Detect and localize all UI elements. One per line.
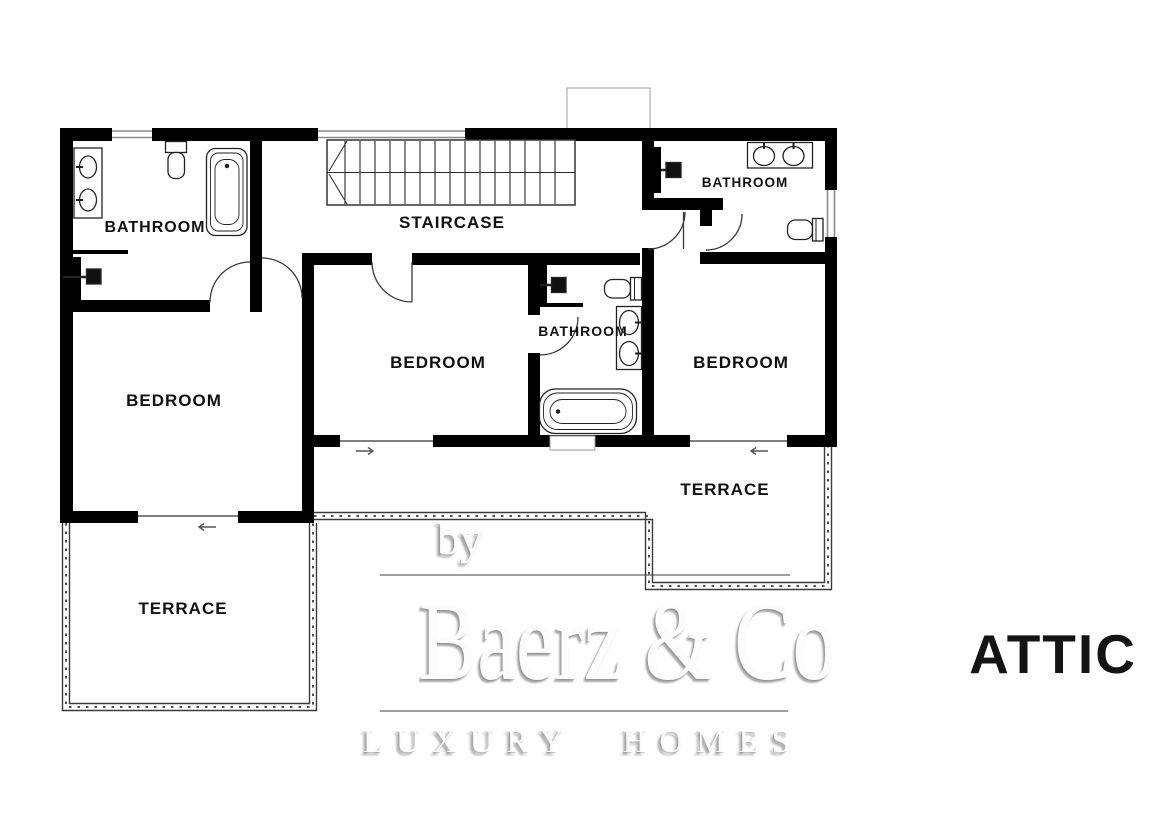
shower-head-icon [87, 269, 102, 284]
toilet-tank [813, 219, 824, 242]
door-swing-icon [262, 258, 302, 298]
window [828, 190, 835, 237]
staircase [327, 140, 575, 205]
toilet-icon [168, 153, 185, 179]
wall [412, 253, 640, 265]
window [112, 131, 152, 138]
doors [210, 212, 742, 355]
shower-panel [654, 147, 661, 193]
wall [152, 128, 318, 141]
bathtub-drain [225, 164, 228, 167]
door-swing-icon [648, 212, 685, 249]
slider-arrow-icon [199, 524, 216, 531]
shower-panel [73, 257, 81, 300]
wall [642, 248, 654, 447]
wall [787, 435, 837, 447]
bathtub-basin [215, 160, 239, 225]
floor-plan-page: by Baerz & Co LUXURY HOMES ATTIC [0, 0, 1166, 821]
railing-balusters [314, 447, 828, 586]
label-terrace-left: TERRACE [138, 599, 227, 618]
toilet-tank [166, 142, 187, 153]
label-bathroom-right: BATHROOM [702, 175, 789, 190]
bathroom-right-fixtures [661, 143, 823, 242]
label-bedroom-left: BEDROOM [126, 391, 222, 410]
bathtub-basin [550, 400, 626, 424]
wall [528, 265, 540, 315]
toilet-icon [605, 280, 631, 299]
label-bathroom-left: BATHROOM [104, 219, 205, 236]
shower-partition [540, 303, 583, 307]
wall [302, 253, 314, 523]
wall [825, 237, 837, 447]
sink-icon [754, 147, 775, 166]
label-bathroom-middle: BATHROOM [538, 323, 627, 339]
floor-plan-drawing: BATHROOM STAIRCASE BATHROOM BATHROOM BED… [0, 0, 1166, 821]
shower-head-icon [552, 278, 567, 293]
railing-outer [314, 447, 832, 590]
slider-doors [138, 441, 787, 516]
wall [528, 353, 540, 435]
shower-partition [72, 250, 128, 254]
toilet-tank [631, 278, 642, 301]
door-swing-icon [372, 262, 412, 302]
railing-inner [314, 447, 825, 583]
wall [314, 435, 340, 447]
wall [302, 253, 372, 265]
wall-niche [550, 436, 595, 450]
window [318, 131, 465, 138]
sink-icon [783, 147, 804, 166]
wall [825, 128, 837, 190]
bathroom-middle-fixtures [540, 278, 643, 434]
label-bedroom-right: BEDROOM [693, 353, 789, 372]
label-staircase: STAIRCASE [399, 213, 505, 232]
wall [700, 252, 825, 264]
chimney-outline [567, 88, 650, 133]
terrace-right-railing [314, 447, 832, 590]
wall [700, 210, 712, 226]
wall [60, 511, 138, 523]
shower-head-icon [666, 163, 681, 178]
slider-arrow-icon [356, 448, 373, 455]
wall [433, 435, 654, 447]
wall [72, 300, 210, 312]
label-terrace-right: TERRACE [680, 480, 769, 499]
wall [60, 128, 73, 523]
wall [238, 511, 314, 523]
bathroom-left-fixtures [63, 142, 247, 285]
wall [465, 128, 837, 141]
slider-arrow-icon [751, 448, 768, 455]
wall [654, 435, 690, 447]
wall [250, 140, 262, 312]
toilet-icon [788, 220, 813, 240]
door-swing-icon [210, 262, 250, 302]
wall [642, 198, 723, 210]
floor-label: ATTIC [940, 622, 1166, 686]
label-bedroom-middle: BEDROOM [390, 353, 486, 372]
bathtub-drain [556, 410, 559, 413]
